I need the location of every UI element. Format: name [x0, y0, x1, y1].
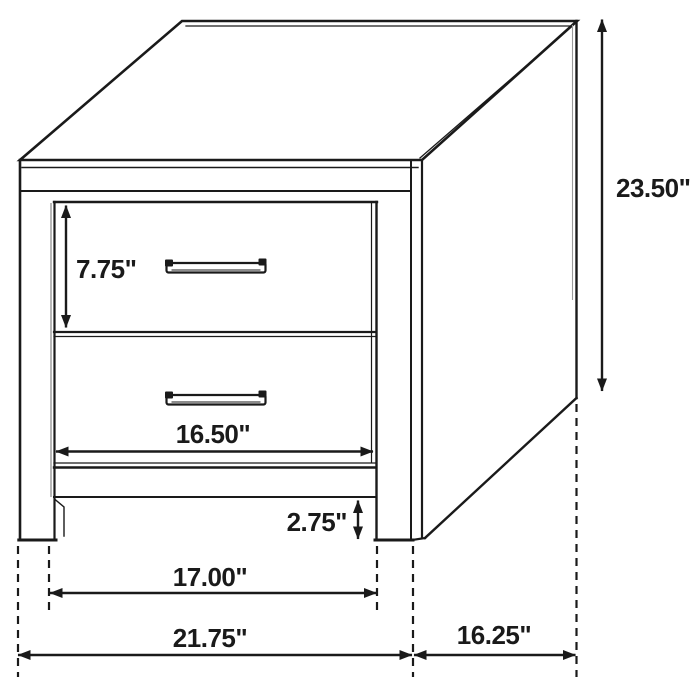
dimension-drawer-height-label: 7.75"	[76, 254, 136, 284]
dimension-overall-width-label: 21.75"	[173, 623, 247, 653]
background	[0, 0, 700, 700]
dimension-overall-height-label: 23.50"	[616, 173, 690, 203]
dimension-foot-clearance-label: 2.75"	[287, 507, 347, 537]
furniture-dimension-diagram: 7.75" 23.50" 16.50" 2.75" 17.00" 21.75" …	[0, 0, 700, 700]
dimension-inner-leg-span-label: 17.00"	[173, 562, 247, 592]
dimension-side-depth-label: 16.25"	[457, 620, 531, 650]
diagram-canvas: 7.75" 23.50" 16.50" 2.75" 17.00" 21.75" …	[0, 0, 700, 700]
dimension-drawer-width-label: 16.50"	[176, 419, 250, 449]
